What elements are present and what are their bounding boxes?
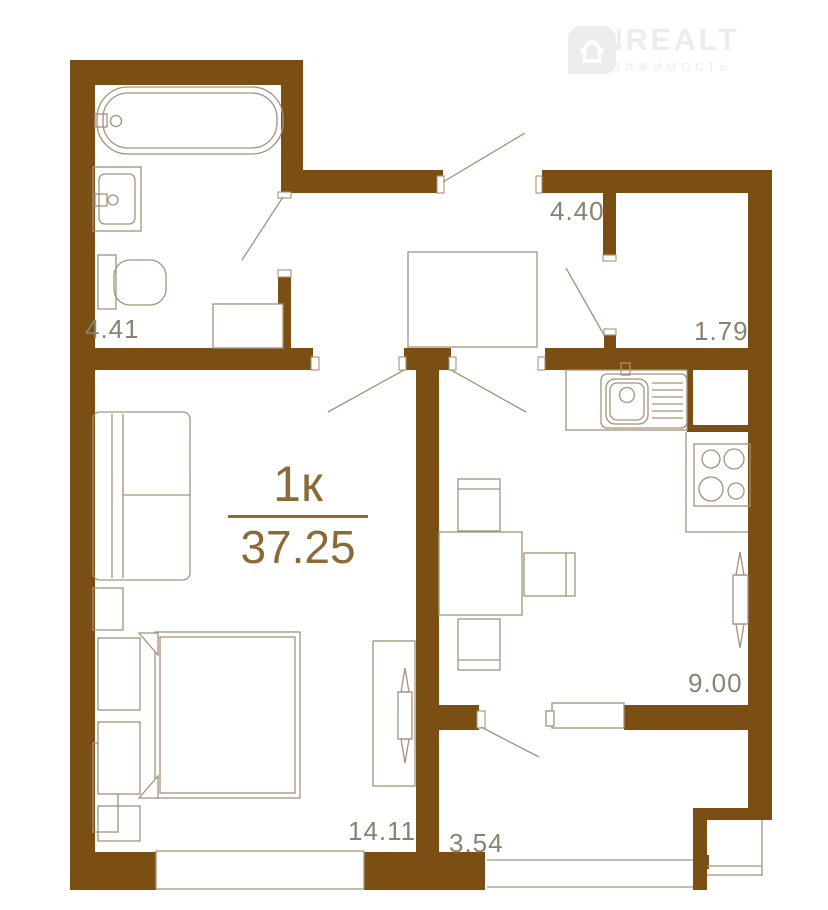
unit-total-area: 37.25 — [226, 524, 370, 570]
window-living — [156, 851, 364, 889]
unit-divider — [228, 515, 368, 518]
unit-summary: 1к 37.25 — [226, 458, 370, 570]
toilet — [98, 255, 166, 309]
label-corridor-area: 3.54 — [449, 828, 504, 859]
stove — [694, 444, 750, 506]
exterior-ledge — [707, 820, 762, 876]
hall-wardrobe — [408, 252, 537, 347]
window-corridor — [487, 860, 693, 887]
door-leaf — [546, 703, 624, 728]
label-hallway-area: 4.40 — [550, 196, 605, 227]
washing-machine — [213, 304, 283, 348]
kitchen-tv — [733, 552, 748, 648]
label-bathroom-area: 4.41 — [85, 314, 140, 345]
nightstand — [93, 588, 140, 841]
kitchen-sink — [601, 363, 687, 428]
unit-type: 1к — [226, 458, 370, 511]
kitchen-counter — [566, 370, 748, 532]
onrealt-logo: ONREALT НЕДВИЖИМОСТЬ — [566, 24, 739, 74]
tv-stand — [373, 641, 415, 786]
bed — [98, 632, 300, 798]
door-thresholds — [278, 176, 616, 728]
floorplan-canvas: 4.41 4.40 1.79 9.00 14.11 3.54 1к 37.25 … — [0, 0, 828, 910]
bathtub — [95, 87, 283, 154]
label-wc-area: 1.79 — [694, 316, 749, 347]
house-pin-icon — [566, 24, 618, 78]
label-living-area: 14.11 — [348, 816, 416, 847]
floorplan-drawing — [0, 0, 828, 910]
bathroom-sink — [93, 167, 141, 231]
sofa — [93, 412, 190, 580]
label-kitchen-area: 9.00 — [688, 668, 743, 699]
dining-table — [439, 532, 522, 615]
